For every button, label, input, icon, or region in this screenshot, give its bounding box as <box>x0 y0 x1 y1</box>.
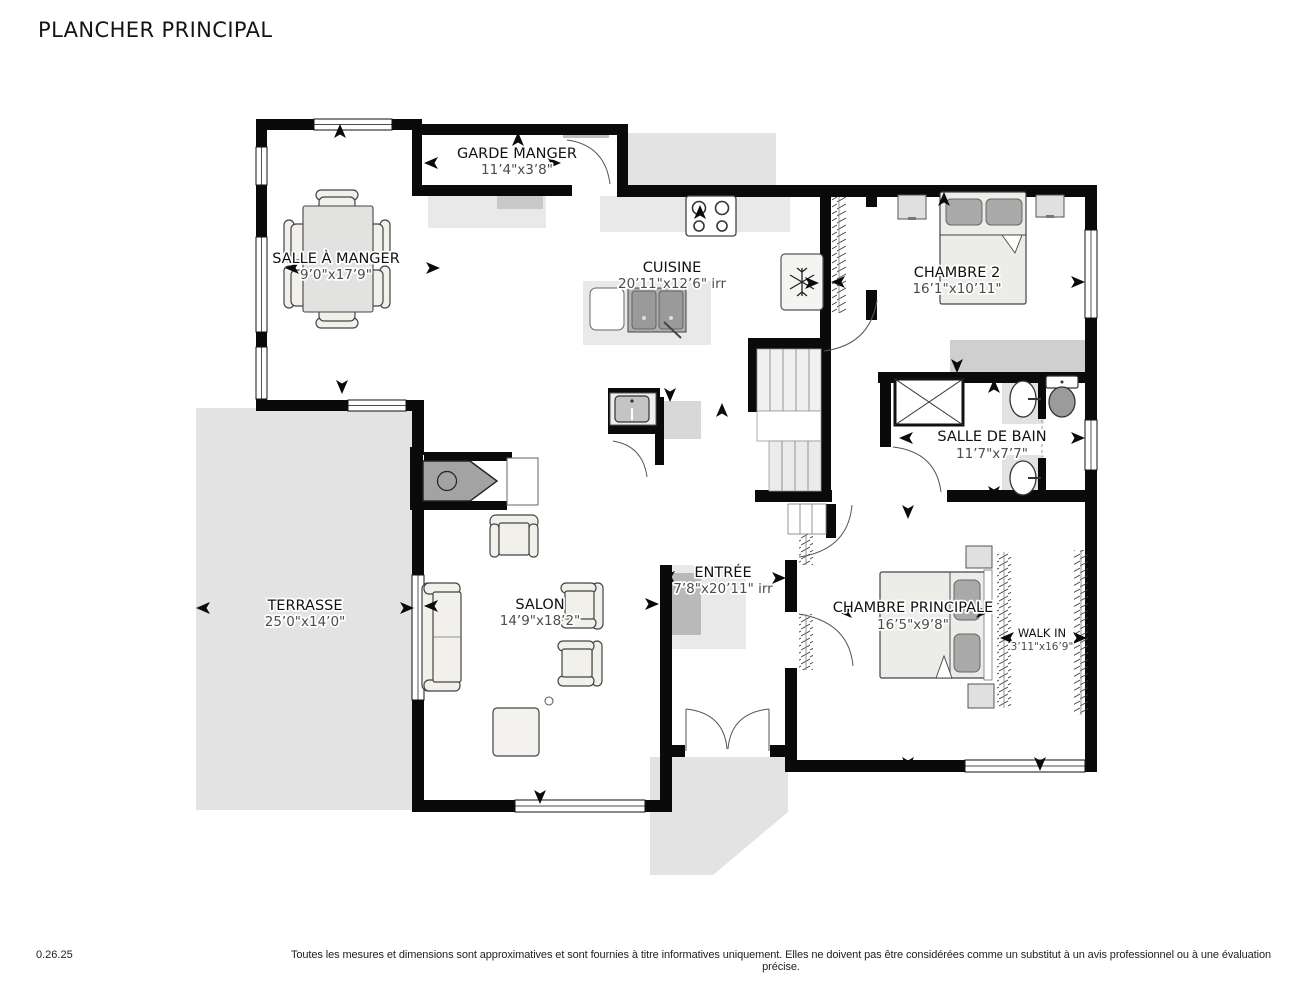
side-table <box>493 697 553 756</box>
room-dims-entree: 7’8"x20’11" irr <box>673 581 773 597</box>
room-dims-garde-manger: 11’4"x3’8" <box>481 162 553 178</box>
room-label-cuisine: CUISINE <box>643 260 702 276</box>
room-label-chambre-principale: CHAMBRE PRINCIPALE <box>833 600 994 616</box>
fridge-icon <box>781 254 823 310</box>
room-label-entree: ENTRÉE <box>694 564 751 581</box>
room-dims-salle-a-manger: 9’0"x17’9" <box>300 267 372 283</box>
version-label: 0.26.25 <box>36 949 73 961</box>
toilet-icon <box>1046 376 1078 417</box>
room-dims-salle-de-bain: 11’7"x7’7" <box>956 446 1028 462</box>
kitchen-sink-icon <box>590 288 686 338</box>
room-label-chambre2: CHAMBRE 2 <box>914 265 1000 281</box>
vanity-sink-icon <box>610 393 656 425</box>
room-label-garde-manger: GARDE MANGER <box>457 146 577 162</box>
deck-area <box>628 133 776 186</box>
stove-icon <box>686 196 736 236</box>
shower-icon <box>895 379 963 425</box>
sofa <box>422 583 461 691</box>
room-label-salle-a-manger: SALLE À MANGER <box>272 250 400 267</box>
room-label-salon: SALON <box>515 597 564 613</box>
room-dims-chambre2: 16’1"x10’11" <box>912 281 1001 297</box>
room-dims-cuisine: 20’11"x12’6" irr <box>618 276 726 292</box>
fireplace-icon <box>423 458 538 505</box>
room-label-salle-de-bain: SALLE DE BAIN <box>937 429 1046 445</box>
disclaimer-text: Toutes les mesures et dimensions sont ap… <box>275 949 1287 973</box>
room-dims-terrasse: 25’0"x14’0" <box>265 614 346 630</box>
room-dims-salon: 14’9"x18’2" <box>500 613 581 629</box>
stairs <box>757 349 826 534</box>
floor-plan: GARDE MANGER 11’4"x3’8" SALLE À MANGER 9… <box>0 0 1295 1000</box>
room-dims-chambre-principale: 16’5"x9’8" <box>877 617 949 633</box>
armchair-top <box>490 515 538 557</box>
room-label-terrasse: TERRASSE <box>266 598 342 614</box>
room-label-walk-in: WALK IN <box>1018 626 1066 640</box>
room-dims-walk-in: 3’11"x16’9" <box>1011 641 1074 653</box>
ottoman <box>558 641 602 686</box>
